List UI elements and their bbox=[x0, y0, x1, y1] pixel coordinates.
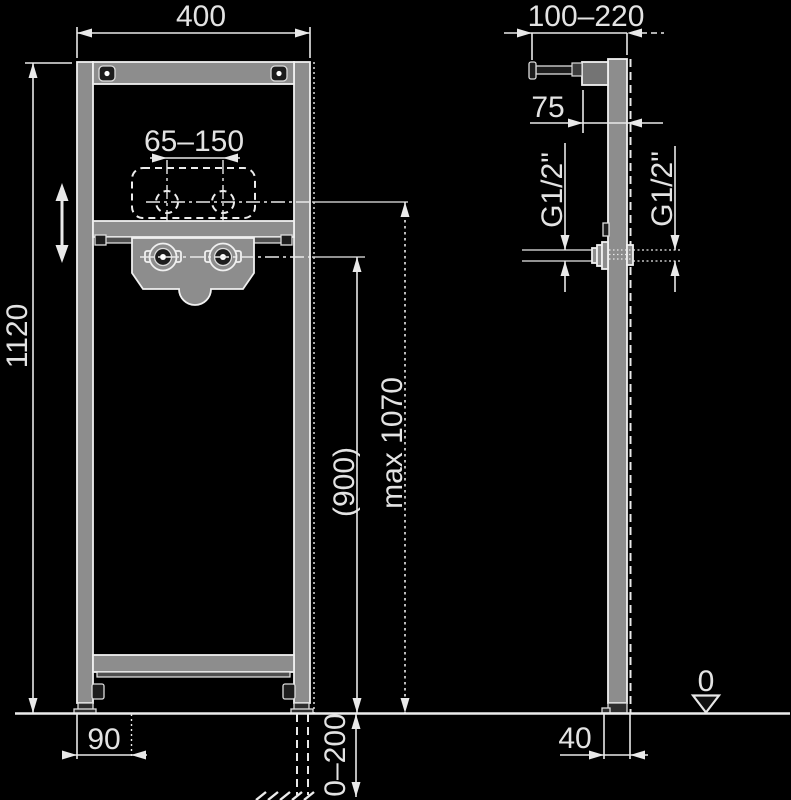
dim-thread-left: G1/2" bbox=[536, 143, 570, 292]
dim-foot-depth-40: 40 bbox=[558, 714, 648, 760]
screw-hole-right bbox=[276, 71, 281, 76]
dim-label-900: (900) bbox=[328, 447, 361, 517]
ground-hatch bbox=[256, 792, 314, 800]
wall-anchor-flange bbox=[529, 62, 536, 79]
socket-step-inner bbox=[602, 242, 608, 269]
faucet-mounting-block bbox=[132, 238, 312, 305]
dim-width-400: 400 bbox=[77, 0, 310, 58]
side-foot-step bbox=[602, 708, 610, 713]
rail-clip-left bbox=[95, 235, 106, 245]
dim-label-75: 75 bbox=[531, 91, 564, 124]
front-bottom-bar bbox=[93, 655, 294, 672]
side-post bbox=[608, 59, 627, 703]
dim-foot-offset-90: 90 bbox=[62, 714, 147, 760]
wall-bracket-block bbox=[582, 62, 608, 85]
dim-label-100-220: 100–220 bbox=[528, 0, 645, 33]
dim-label-max-1070: max 1070 bbox=[376, 377, 409, 509]
front-top-bar bbox=[93, 62, 294, 84]
front-right-post bbox=[294, 62, 310, 703]
dim-label-0-200: 0–200 bbox=[319, 713, 352, 796]
front-middle-bar bbox=[93, 221, 294, 237]
dim-label-65-150: 65–150 bbox=[144, 125, 244, 158]
dim-leg-adjust-0-200: 0–200 bbox=[319, 713, 361, 797]
pipe-clip bbox=[603, 223, 609, 236]
faucet-dashed-outline bbox=[132, 160, 312, 221]
side-view: 100–220 75 G1/2" G1/2" bbox=[504, 0, 719, 760]
screw-hole-left bbox=[104, 71, 109, 76]
block-body bbox=[132, 238, 254, 305]
dim-height-1120: 1120 bbox=[1, 63, 72, 713]
leg-adjuster-right bbox=[283, 684, 295, 699]
adjustability-double-arrow bbox=[56, 183, 69, 263]
mixer-body-outline bbox=[132, 168, 255, 218]
drawing-canvas: 400 1120 65–150 (900) bbox=[0, 0, 791, 800]
rail-clip-right bbox=[281, 235, 292, 245]
water-connection-side bbox=[522, 242, 680, 269]
datum-triangle-icon bbox=[693, 696, 719, 713]
front-view: 400 1120 65–150 (900) bbox=[1, 0, 410, 800]
side-foot bbox=[608, 703, 627, 713]
dim-label-90: 90 bbox=[87, 723, 120, 756]
dim-depth-100-220: 100–220 bbox=[504, 0, 664, 60]
dim-bracket-75: 75 bbox=[530, 90, 663, 133]
technical-drawing: 400 1120 65–150 (900) bbox=[0, 0, 791, 800]
dim-label-40: 40 bbox=[558, 722, 591, 755]
thread-label-right: G1/2" bbox=[646, 151, 679, 227]
rod-collar bbox=[572, 63, 582, 76]
front-left-post bbox=[77, 62, 93, 703]
front-frame bbox=[74, 62, 314, 800]
front-bottom-rail bbox=[97, 672, 290, 677]
dim-thread-right: G1/2" bbox=[646, 146, 680, 292]
datum-label-0: 0 bbox=[698, 665, 715, 698]
dim-tap-spacing-65-150: 65–150 bbox=[144, 125, 244, 163]
dim-label-400: 400 bbox=[176, 0, 226, 33]
dim-connection-height-900: (900) bbox=[312, 257, 365, 713]
leg-adjuster-left bbox=[92, 684, 104, 699]
floor-datum: 0 bbox=[693, 665, 719, 713]
dim-label-1120: 1120 bbox=[1, 304, 34, 369]
thread-label-left: G1/2" bbox=[536, 152, 569, 228]
